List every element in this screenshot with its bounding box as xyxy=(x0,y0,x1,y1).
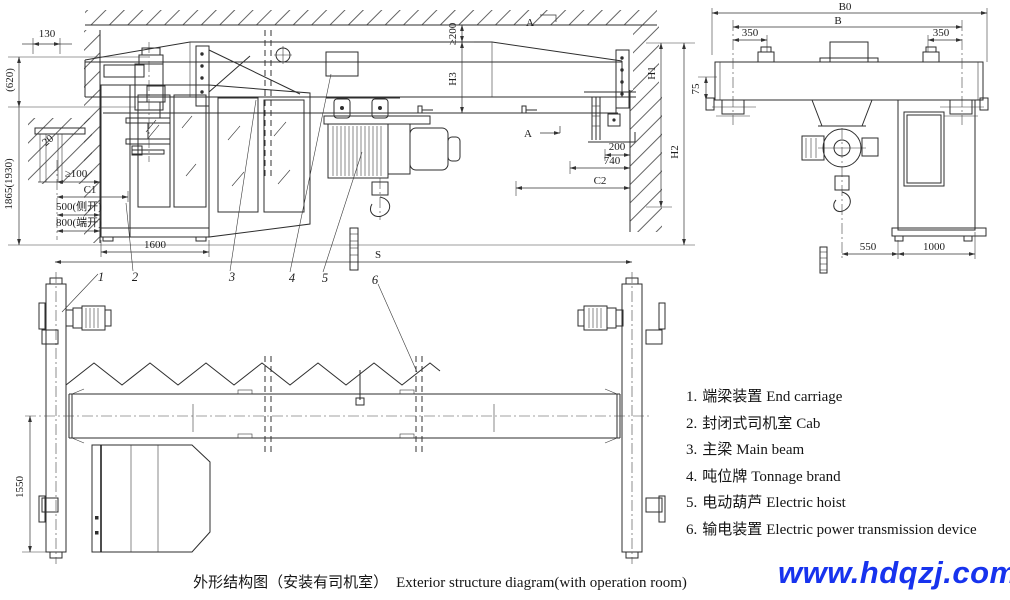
legend-item-main-beam: 3.主梁Main beam xyxy=(686,437,1010,464)
cab-front xyxy=(101,85,310,241)
dim-75: 75 xyxy=(690,83,702,95)
legend-num: 5. xyxy=(686,495,697,511)
dim-130: 130 xyxy=(39,28,56,40)
legend-en: Electric hoist xyxy=(766,495,846,511)
caption-en: Exterior structure diagram(with operatio… xyxy=(396,575,687,591)
legend-en: Main beam xyxy=(736,442,804,458)
legend-en: Electric power transmission device xyxy=(766,522,976,538)
legend-zh: 吨位牌 xyxy=(702,469,747,485)
dim-740: 740 xyxy=(604,155,621,167)
front-view: 130 (620) 1865(1930) 20 ≥100 C1 500(侧开) … xyxy=(3,10,695,372)
dim-b: B xyxy=(834,15,841,27)
parts-legend: 1.端梁装置End carriage 2.封闭式司机室Cab 3.主梁Main … xyxy=(686,384,1010,543)
dim-350-left: 350 xyxy=(742,27,759,39)
cab-side xyxy=(892,100,986,241)
power-feed-drop xyxy=(350,228,358,270)
leader-3: 3 xyxy=(228,270,235,284)
dim-620: (620) xyxy=(4,68,16,92)
legend-zh: 输电装置 xyxy=(702,522,762,538)
dim-500-side-open: 500(侧开) xyxy=(56,200,102,213)
legend-num: 1. xyxy=(686,389,697,405)
watermark-link[interactable]: www.hdqzj.com xyxy=(778,555,1010,591)
dim-350-right: 350 xyxy=(933,27,950,39)
drawing-caption: 外形结构图（安装有司机室）Exterior structure diagram(… xyxy=(140,571,740,592)
side-view: B0 B 350 350 75 550 1000 xyxy=(690,1,988,273)
dim-s: S xyxy=(375,249,381,261)
legend-en: Cab xyxy=(796,416,820,432)
legend-zh: 端梁装置 xyxy=(702,389,762,405)
leader-2: 2 xyxy=(132,270,138,284)
dim-1000: 1000 xyxy=(923,241,946,253)
hoist-drum-ribs xyxy=(333,126,381,176)
legend-num: 2. xyxy=(686,416,697,432)
dim-b0: B0 xyxy=(839,1,852,13)
dim-h1: H1 xyxy=(646,66,658,79)
section-label-a-top: A xyxy=(526,17,534,29)
legend-item-power-transmission: 6.输电装置Electric power transmission device xyxy=(686,517,1010,544)
legend-zh: 电动葫芦 xyxy=(702,495,762,511)
side-dimensions: B0 B 350 350 75 550 1000 xyxy=(690,1,987,259)
leader-5: 5 xyxy=(322,271,328,285)
legend-num: 3. xyxy=(686,442,697,458)
dim-550: 550 xyxy=(860,241,877,253)
tonnage-brand xyxy=(326,52,358,76)
dim-800-end-open: 800(端开) xyxy=(56,216,102,229)
legend-item-tonnage-brand: 4.吨位牌Tonnage brand xyxy=(686,464,1010,491)
leader-1: 1 xyxy=(98,270,104,284)
section-label-a-bottom: A xyxy=(524,128,532,140)
leader-4: 4 xyxy=(289,271,295,285)
plan-main-beam xyxy=(25,356,650,452)
legend-zh: 封闭式司机室 xyxy=(702,416,792,432)
leader-6: 6 xyxy=(372,273,379,287)
legend-num: 4. xyxy=(686,469,697,485)
dim-200: 200 xyxy=(609,141,626,153)
plan-end-carriage-right xyxy=(578,272,665,564)
dim-c2: C2 xyxy=(594,175,607,187)
dim-h3: H3 xyxy=(447,72,459,86)
dim-c1: C1 xyxy=(84,184,97,196)
end-carriage-right xyxy=(584,50,636,142)
legend-zh: 主梁 xyxy=(702,442,732,458)
end-carriage-left xyxy=(126,42,300,162)
dim-1865-1930: 1865(1930) xyxy=(3,158,15,210)
legend-en: Tonnage brand xyxy=(751,469,840,485)
electric-hoist-front xyxy=(324,98,460,220)
caption-zh: 外形结构图（安装有司机室） xyxy=(193,575,388,591)
plan-view: 1550 xyxy=(14,272,665,564)
legend-num: 6. xyxy=(686,522,697,538)
legend-item-cab: 2.封闭式司机室Cab xyxy=(686,411,1010,438)
festoon-cable xyxy=(66,363,440,405)
legend-item-end-carriage: 1.端梁装置End carriage xyxy=(686,384,1010,411)
dim-1550: 1550 xyxy=(14,476,26,499)
power-feed-drop-side xyxy=(820,247,827,273)
plan-dimensions: 1550 xyxy=(14,416,46,552)
legend-item-electric-hoist: 5.电动葫芦Electric hoist xyxy=(686,490,1010,517)
dim-h2: H2 xyxy=(669,145,681,158)
leader-callouts: 1 2 3 4 5 6 xyxy=(62,74,417,372)
dim-ge100: ≥100 xyxy=(65,168,88,180)
cab-plan xyxy=(92,445,210,552)
crane-exterior-structure-page: 130 (620) 1865(1930) 20 ≥100 C1 500(侧开) … xyxy=(0,0,1010,600)
legend-en: End carriage xyxy=(766,389,842,405)
